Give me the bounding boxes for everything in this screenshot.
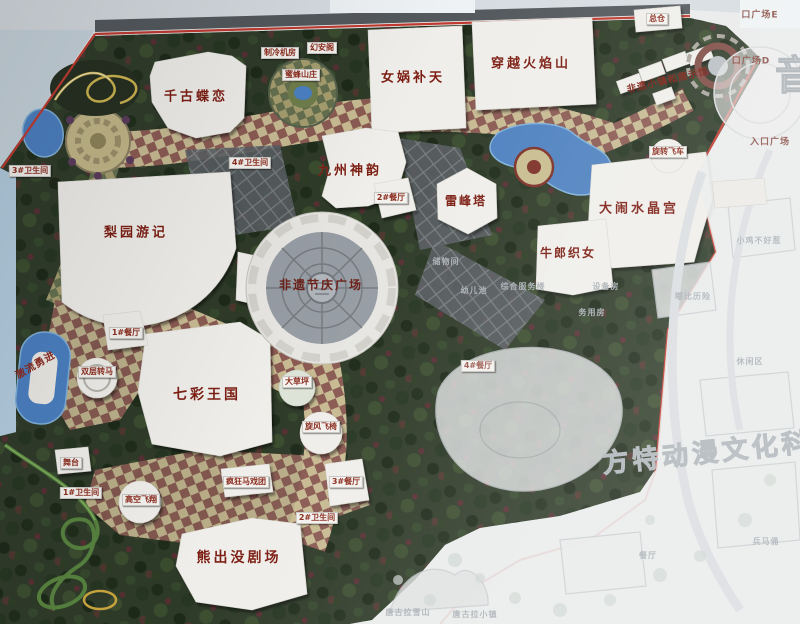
attraction-label: 七彩王国 — [173, 388, 241, 402]
facility-label: 大草坪 — [282, 376, 312, 388]
faint-label: 休闲区 — [737, 358, 764, 366]
facility-label: 2#餐厅 — [374, 192, 408, 204]
faint-label: 唐古拉小镇 — [453, 611, 498, 619]
facility-label: 2#卫生间 — [296, 512, 338, 524]
facility-label: 蜜蜂山庄 — [282, 69, 320, 81]
faint-label: 设备房 — [593, 283, 620, 291]
facility-label: 疯狂马戏团 — [223, 476, 269, 488]
park-map-photo: 千古蝶恋 女娲补天 穿越火焰山 九州神韵 雷峰塔 大闹水晶宫 牛郎织女 梨园游记… — [0, 0, 800, 624]
facility-label: 旋转飞车 — [649, 146, 687, 158]
facility-label: 旋风飞椅 — [302, 421, 340, 433]
attraction-label: 女娲补天 — [381, 72, 445, 85]
facility-label: 幻安阁 — [307, 42, 337, 54]
attraction-label: 雷峰塔 — [445, 195, 487, 207]
faint-label: 储物间 — [433, 258, 460, 266]
faint-label: 餐厅 — [639, 552, 657, 560]
attraction-label: 梨园游记 — [104, 227, 168, 240]
facility-label: 舞台 — [60, 457, 82, 469]
faint-label: 嘟比历险 — [675, 293, 711, 301]
facility-label: 高空飞翔 — [122, 494, 160, 506]
facility-label: 3#餐厅 — [329, 476, 363, 488]
attraction-label: 九州神韵 — [318, 165, 382, 178]
facility-label: 3#卫生间 — [9, 165, 51, 177]
facility-label: 双层转马 — [78, 366, 116, 378]
faint-label: 唐古拉雪山 — [386, 609, 431, 617]
attraction-label: 千古蝶恋 — [164, 91, 228, 104]
faint-label: 综合服务楼 — [501, 283, 546, 291]
facility-label: 4#卫生间 — [229, 157, 271, 169]
site-plan-graphic — [0, 0, 800, 624]
corner-glyph: 音 — [775, 56, 800, 96]
attraction-label: 熊出没剧场 — [197, 551, 282, 565]
attraction-label: 穿越火焰山 — [491, 58, 571, 71]
faint-label: 务用房 — [579, 309, 606, 317]
facility-label: 总仓 — [646, 13, 668, 25]
facility-label: 1#卫生间 — [60, 487, 102, 499]
facility-label: 4#餐厅 — [461, 360, 495, 372]
entrance-label: 口广场E — [741, 12, 778, 21]
attraction-label: 非遗节庆广场 — [279, 279, 363, 291]
attraction-label: 牛郎织女 — [540, 247, 596, 259]
attraction-label: 大闹水晶宫 — [599, 203, 679, 216]
faint-label: 小鸡不好惹 — [737, 237, 782, 245]
entrance-label: 入口广场 — [750, 139, 790, 148]
entrance-label: 口广场D — [732, 58, 770, 67]
faint-label: 幼儿池 — [461, 287, 488, 295]
facility-label: 制冷机房 — [261, 47, 299, 59]
facility-label: 1#餐厅 — [109, 327, 143, 339]
faint-label: 兵马俑 — [753, 538, 780, 546]
